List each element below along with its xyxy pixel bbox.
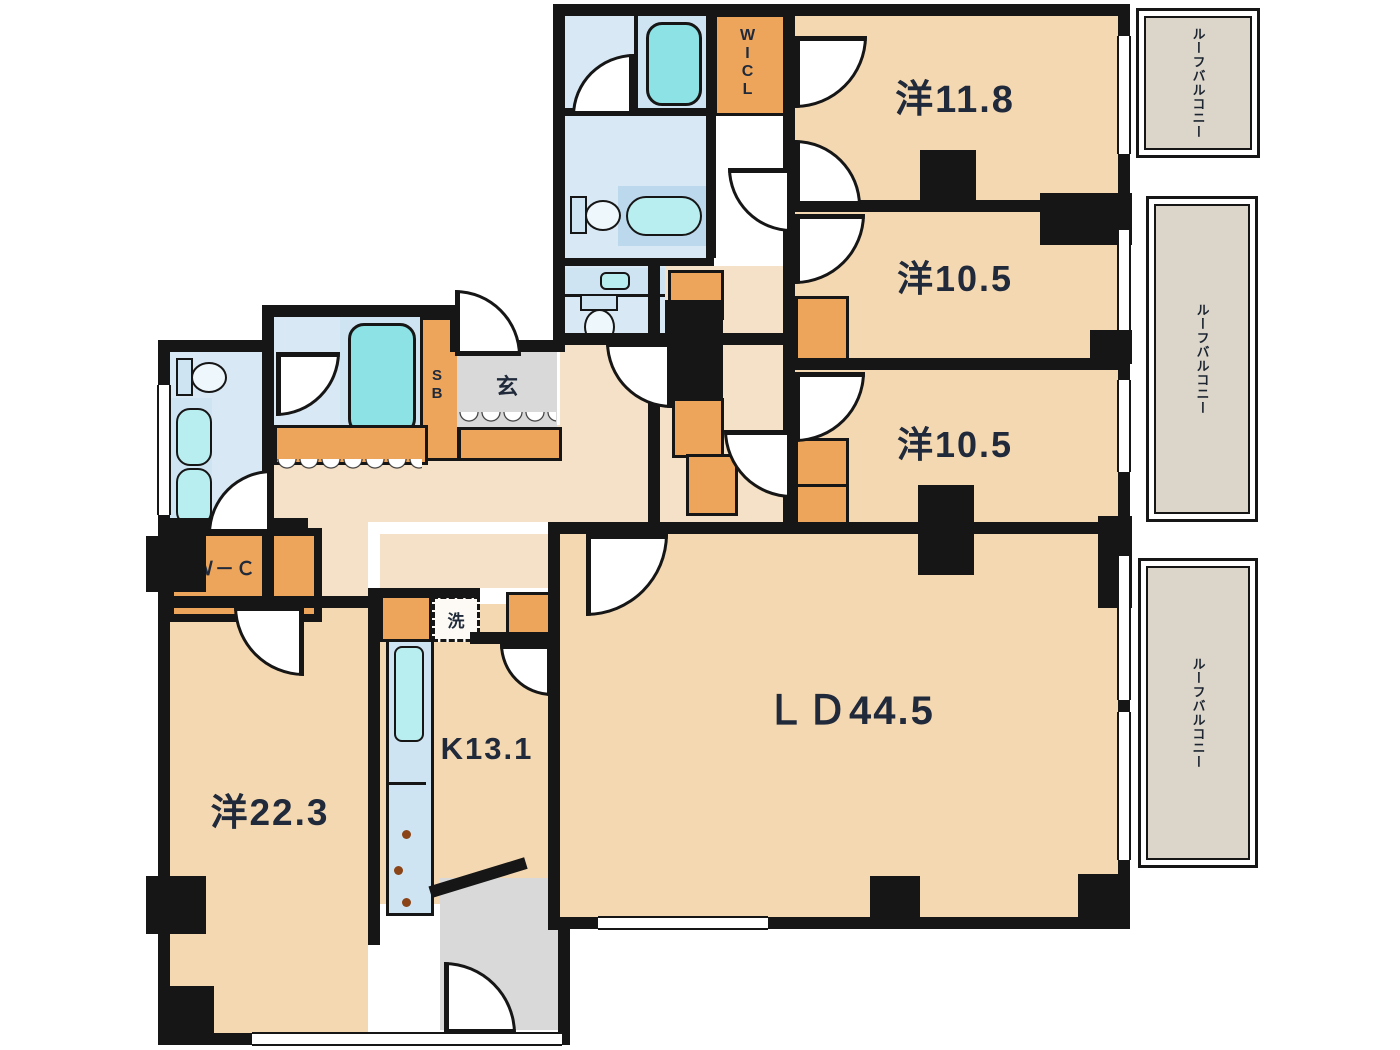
wall-washroom-divider-2 xyxy=(556,258,714,266)
balcony-north: ルーフバルコニー xyxy=(1136,8,1260,158)
label-living-dining: ＬＤ44.5 xyxy=(700,672,1000,742)
entrance-label: 玄 xyxy=(478,360,538,410)
balcony-middle: ルーフバルコニー xyxy=(1146,196,1258,522)
label-bedroom-west: 洋22.3 xyxy=(168,778,372,840)
window-ne-room xyxy=(1117,36,1131,154)
wall-kitchen-top xyxy=(470,632,560,644)
window-west-bottom xyxy=(252,1032,562,1046)
wall-toilet-top xyxy=(158,340,274,352)
balcony-south-label: ルーフバルコニー xyxy=(1146,566,1250,860)
bathtub-top xyxy=(646,22,702,106)
wall-top xyxy=(553,4,1130,16)
pillar-ld-top xyxy=(918,485,974,575)
wall-east-divider xyxy=(783,358,1130,370)
label-bedroom-east-lower: 洋10.5 xyxy=(795,412,1115,472)
window-east-upper xyxy=(1117,230,1131,330)
floor-plan: WICL SB 玄 Ｗ－ＣＬ 洗 xyxy=(0,0,1400,1050)
wall-kitchen-left xyxy=(368,592,380,945)
pillar-west-lower xyxy=(146,876,206,934)
wall-washroom-right xyxy=(706,112,716,258)
window-east-lower xyxy=(1117,380,1131,472)
toilet-west xyxy=(176,358,227,396)
door-entrance xyxy=(455,290,521,356)
walk-in-closet-ne-label: WICL xyxy=(714,18,780,108)
pillar-ne-room xyxy=(920,150,976,202)
stove-burner-1 xyxy=(402,830,411,839)
window-toilet-west xyxy=(157,385,171,515)
toilet-middle xyxy=(570,196,621,234)
powder-sink xyxy=(600,272,630,290)
door-corridor-utility xyxy=(728,168,792,232)
window-ld-bottom xyxy=(598,916,768,930)
window-ld-2 xyxy=(1117,712,1131,860)
label-kitchen: K13.1 xyxy=(412,722,562,776)
corridor-storage-3 xyxy=(686,454,738,516)
label-bedroom-east-upper: 洋10.5 xyxy=(795,246,1115,306)
wall-bath-west-top xyxy=(262,305,462,317)
duct-center xyxy=(665,300,723,400)
pillar-west-corner xyxy=(158,986,214,1044)
wall-laundry-top xyxy=(368,588,480,598)
washbasin-west-1 xyxy=(176,408,212,466)
window-ld-1 xyxy=(1117,556,1131,700)
wall-wicl-left xyxy=(706,8,716,112)
pillar-ld-bottom xyxy=(870,876,920,928)
balcony-south: ルーフバルコニー xyxy=(1138,558,1258,868)
shoe-box-label: SB xyxy=(420,330,454,440)
pillar-east-mid xyxy=(1090,330,1132,364)
hallway-kitchen-pocket xyxy=(380,534,548,588)
wall-ld-top xyxy=(553,522,1130,534)
corridor-storage-2 xyxy=(672,398,724,458)
pillar-ld-corner xyxy=(1078,874,1130,928)
kitchen-storage-left xyxy=(380,592,432,642)
wall-entry-right xyxy=(558,925,570,1045)
wall-utility-left xyxy=(553,4,565,345)
wall-bath-toilet-divider xyxy=(262,305,274,605)
closet-under-bath-arcs xyxy=(276,459,422,474)
balcony-north-label: ルーフバルコニー xyxy=(1144,16,1252,150)
kitchen-counter-divider xyxy=(388,782,426,785)
laundry-label: 洗 xyxy=(448,607,465,632)
washbasin-oval xyxy=(626,196,702,236)
entrance-shoe-cabinet xyxy=(458,427,562,461)
balcony-middle-label: ルーフバルコニー xyxy=(1154,204,1250,514)
pillar-west-upper xyxy=(146,536,206,592)
stove-burner-2 xyxy=(394,866,403,875)
stove-burner-3 xyxy=(402,898,411,907)
entrance-shoe-arcs xyxy=(458,412,556,427)
bathtub-west xyxy=(348,323,416,435)
wall-bath-top-partition xyxy=(634,8,638,112)
label-bedroom-northeast: 洋11.8 xyxy=(795,60,1115,130)
